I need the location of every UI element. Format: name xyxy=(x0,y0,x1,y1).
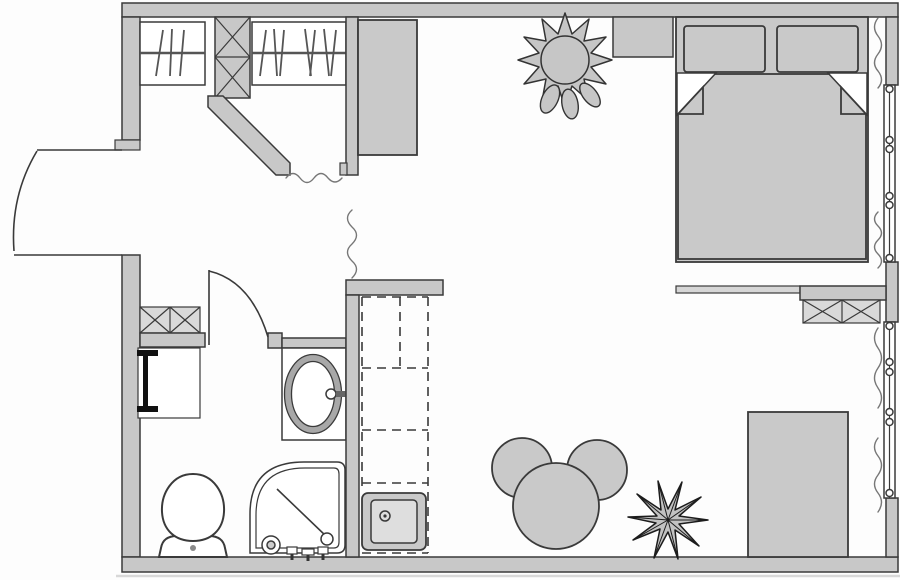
shower-drain xyxy=(321,533,333,545)
pillow-right xyxy=(777,26,858,72)
door-jamb-bathroom xyxy=(268,333,282,348)
towel-radiator xyxy=(137,348,200,418)
bathroom-door xyxy=(209,270,268,345)
door-swing-arc xyxy=(13,151,37,251)
wall-closet-right xyxy=(346,17,358,175)
washer-cabinet-crossed xyxy=(140,307,200,333)
opening-squiggle-hall xyxy=(286,174,342,183)
plant-center xyxy=(541,36,589,84)
blanket xyxy=(678,74,866,259)
angled-wall xyxy=(208,96,290,175)
door-jamb-hall xyxy=(340,163,347,175)
living-dining-area xyxy=(492,412,848,559)
door-jamb-upper xyxy=(115,140,140,150)
toilet xyxy=(159,474,227,557)
corner-shower xyxy=(250,462,345,561)
storage-cabinet-crossed xyxy=(803,300,880,323)
entrance-door xyxy=(13,150,122,255)
desk-table xyxy=(748,412,848,557)
wardrobe-cabinet xyxy=(358,20,417,155)
floor-plan-canvas xyxy=(0,0,900,580)
opening-squiggle-kitchen xyxy=(348,210,357,278)
curtain-squiggles xyxy=(875,18,882,512)
door-swing-arc xyxy=(209,271,268,337)
wall-top xyxy=(122,3,898,17)
faucet-handle xyxy=(336,391,346,397)
wall-stub-bedhead xyxy=(613,17,673,57)
flush-button xyxy=(190,545,196,551)
wall-left-upper xyxy=(122,17,140,140)
kitchen-niche xyxy=(346,210,443,557)
low-partition xyxy=(676,286,800,293)
toilet-bowl xyxy=(162,474,224,541)
window-upper xyxy=(884,85,895,262)
plant-spiky xyxy=(628,481,708,559)
plant-large xyxy=(518,13,612,120)
wall-partition xyxy=(800,286,886,300)
wall-bathroom-top-right xyxy=(282,338,346,348)
bathroom xyxy=(137,270,353,561)
pillow-left xyxy=(684,26,765,72)
washbasin-vanity xyxy=(282,348,353,440)
wall-kitchen-top xyxy=(346,280,443,295)
sleeping-area xyxy=(613,17,868,262)
wall-right-bottom xyxy=(886,498,898,557)
wall-right-top xyxy=(886,17,898,85)
wall-kitchen-left xyxy=(346,295,359,557)
floor-plan-page xyxy=(0,0,900,580)
kitchen-sink xyxy=(362,493,426,550)
faucet xyxy=(326,389,336,399)
partition-and-cabinet xyxy=(676,286,886,323)
window-lower xyxy=(884,322,895,498)
wall-bottom xyxy=(122,557,898,572)
double-bed xyxy=(676,17,868,262)
dining-table-round xyxy=(513,463,599,549)
wall-right-middle xyxy=(886,262,898,322)
walk-in-closet xyxy=(140,17,417,183)
duct-shaft-column xyxy=(215,17,250,98)
wall-bathroom-top-left xyxy=(140,333,205,347)
